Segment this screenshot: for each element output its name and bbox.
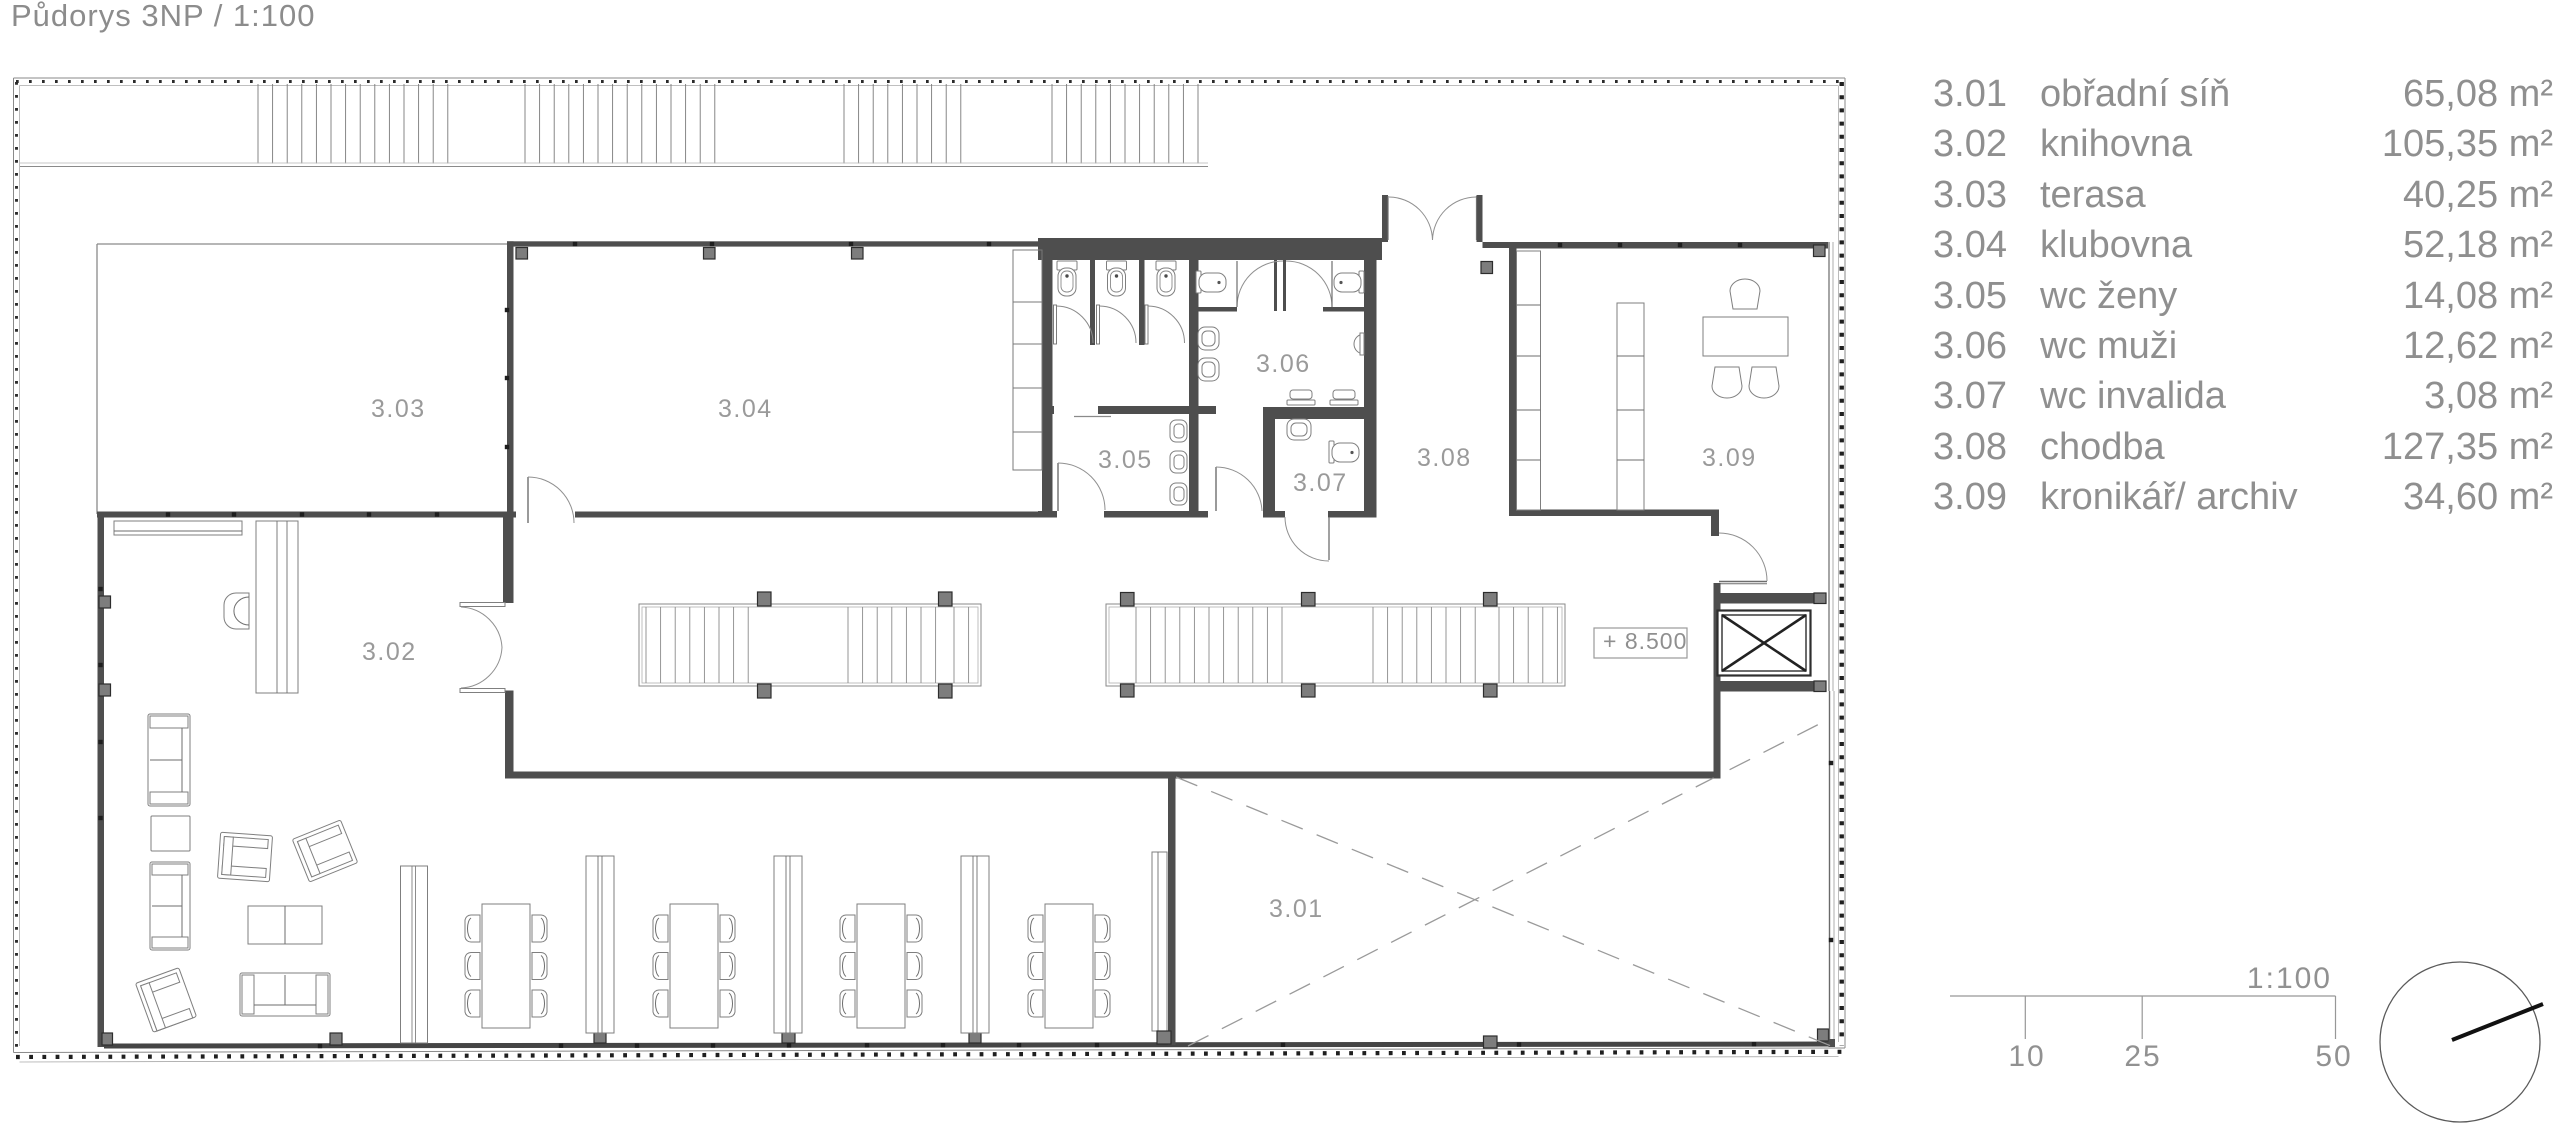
svg-text:chodba: chodba — [2040, 426, 2166, 468]
svg-text:127,35 m²: 127,35 m² — [2382, 426, 2553, 468]
svg-text:obřadní síň: obřadní síň — [2040, 73, 2230, 115]
svg-text:wc ženy: wc ženy — [2039, 275, 2177, 317]
svg-text:3.02: 3.02 — [362, 638, 417, 666]
svg-text:3.03: 3.03 — [1933, 174, 2007, 216]
svg-text:3.05: 3.05 — [1098, 446, 1153, 474]
svg-text:3.09: 3.09 — [1702, 444, 1757, 472]
svg-text:1:100: 1:100 — [2247, 962, 2332, 995]
svg-text:terasa: terasa — [2040, 174, 2146, 216]
svg-text:12,62 m²: 12,62 m² — [2403, 325, 2553, 367]
svg-text:3.02: 3.02 — [1933, 123, 2007, 165]
svg-text:3.04: 3.04 — [718, 395, 773, 423]
svg-text:3.07: 3.07 — [1293, 469, 1348, 497]
svg-text:Půdorys 3NP / 1:100: Půdorys 3NP / 1:100 — [11, 0, 316, 33]
svg-text:50: 50 — [2315, 1040, 2352, 1073]
svg-text:65,08 m²: 65,08 m² — [2403, 73, 2553, 115]
svg-text:3.01: 3.01 — [1933, 73, 2007, 115]
svg-text:3.04: 3.04 — [1933, 224, 2007, 266]
svg-text:3.06: 3.06 — [1933, 325, 2007, 367]
svg-text:52,18 m²: 52,18 m² — [2403, 224, 2553, 266]
svg-text:wc muži: wc muži — [2039, 325, 2177, 367]
svg-text:3,08 m²: 3,08 m² — [2424, 375, 2553, 417]
svg-text:40,25 m²: 40,25 m² — [2403, 174, 2553, 216]
svg-text:3.08: 3.08 — [1933, 426, 2007, 468]
svg-text:10: 10 — [2008, 1040, 2045, 1073]
svg-text:+ 8.500: + 8.500 — [1603, 628, 1687, 654]
svg-text:klubovna: klubovna — [2040, 224, 2193, 266]
svg-text:3.07: 3.07 — [1933, 375, 2007, 417]
svg-text:3.08: 3.08 — [1417, 444, 1472, 472]
svg-text:3.01: 3.01 — [1269, 895, 1324, 923]
svg-text:14,08 m²: 14,08 m² — [2403, 275, 2553, 317]
svg-text:knihovna: knihovna — [2040, 123, 2193, 165]
svg-text:wc invalida: wc invalida — [2039, 375, 2227, 417]
svg-text:105,35 m²: 105,35 m² — [2382, 123, 2553, 165]
svg-text:3.09: 3.09 — [1933, 476, 2007, 518]
svg-text:25: 25 — [2124, 1040, 2161, 1073]
svg-text:kronikář/ archiv: kronikář/ archiv — [2040, 476, 2298, 518]
svg-text:34,60 m²: 34,60 m² — [2403, 476, 2553, 518]
svg-text:3.05: 3.05 — [1933, 275, 2007, 317]
svg-text:3.06: 3.06 — [1256, 350, 1311, 378]
svg-text:3.03: 3.03 — [371, 395, 426, 423]
